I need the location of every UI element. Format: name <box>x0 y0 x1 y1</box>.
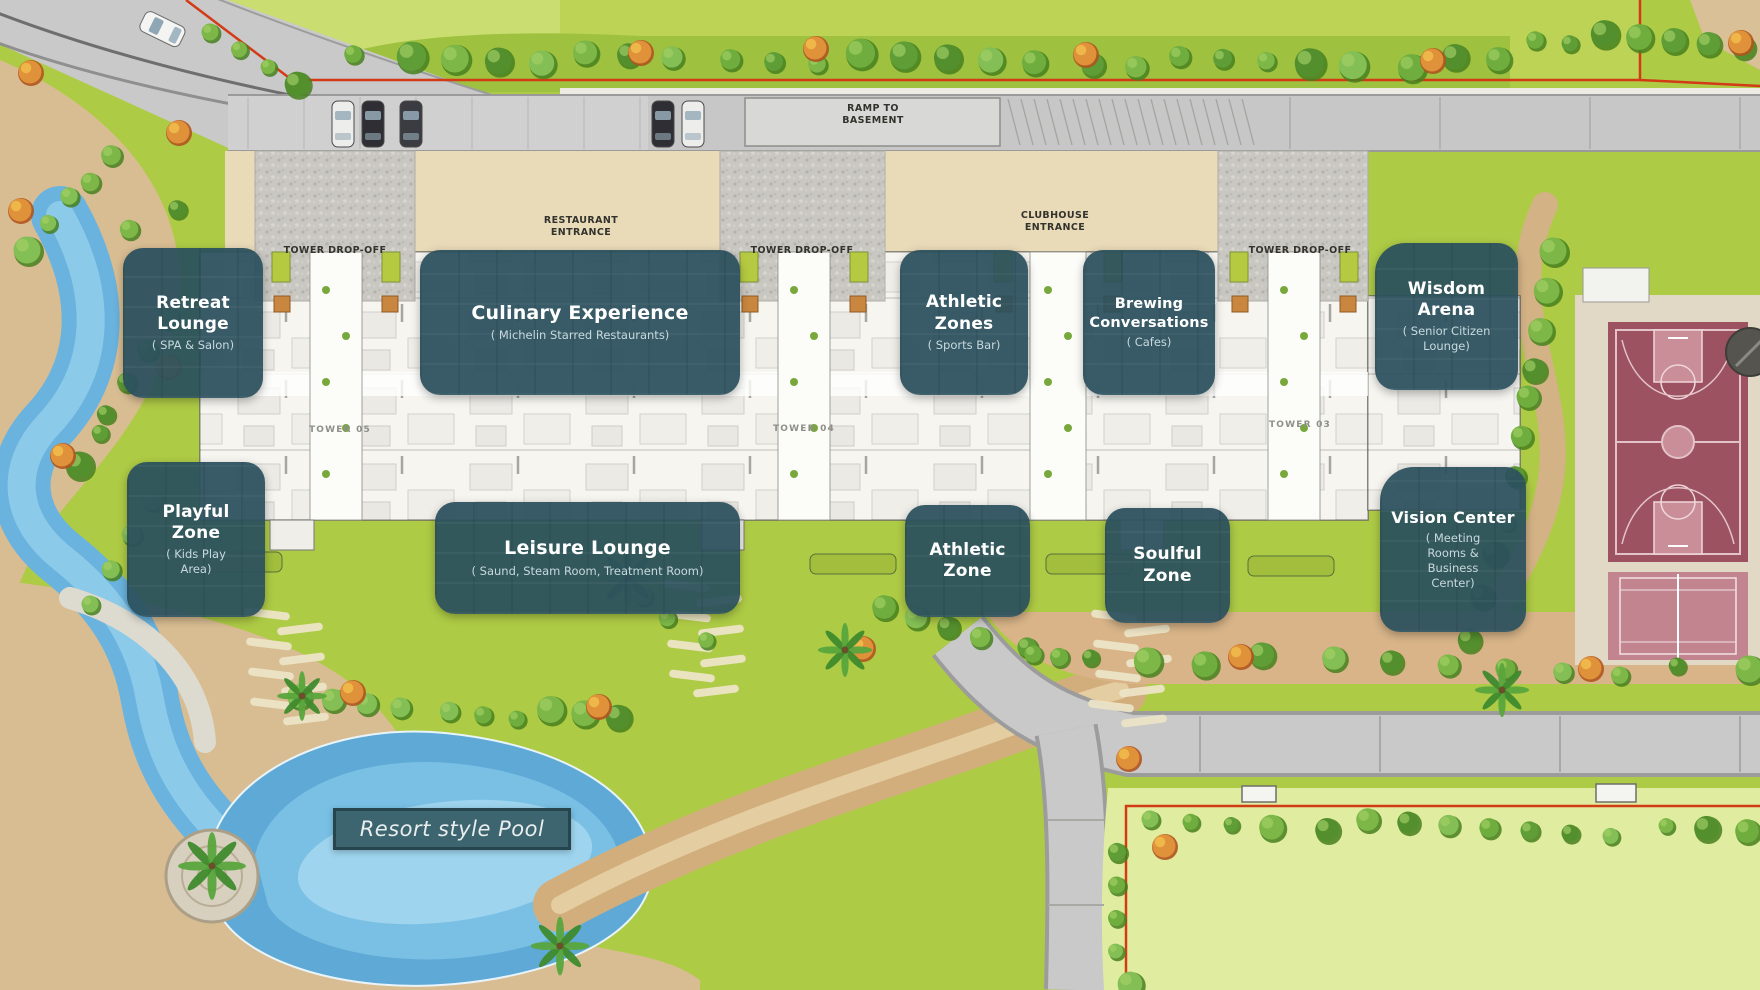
callout-title: Wisdom Arena <box>1383 279 1510 322</box>
clubhouse-corridor <box>1030 252 1086 520</box>
callout-subtitle: ( Senior Citizen Lounge) <box>1383 324 1510 354</box>
masterplan-site-plan: Retreat Lounge ( SPA & Salon) Culinary E… <box>0 0 1760 990</box>
big-lawn <box>1102 788 1760 990</box>
callout-title: Athletic Zones <box>908 292 1020 335</box>
callout-athletic-zones: Athletic Zones ( Sports Bar) <box>900 250 1028 395</box>
tower-04-label: TOWER 04 <box>764 424 844 434</box>
tower-03-label: TOWER 03 <box>1260 420 1340 430</box>
callout-vision-center: Vision Center ( Meeting Rooms & Business… <box>1380 467 1526 632</box>
callout-soulful-zone: Soulful Zone <box>1105 508 1230 623</box>
callout-title: Culinary Experience <box>471 302 688 326</box>
callout-subtitle: ( Kids Play Area) <box>155 547 237 577</box>
tower-dropoff-label-1: TOWER DROP-OFF <box>270 245 400 257</box>
callout-title: Retreat Lounge <box>145 293 241 336</box>
callout-retreat-lounge: Retreat Lounge ( SPA & Salon) <box>123 248 263 398</box>
tower-dropoff-label-2: TOWER DROP-OFF <box>737 245 867 257</box>
tower-dropoff-label-3: TOWER DROP-OFF <box>1230 245 1370 257</box>
callout-subtitle: ( Cafes) <box>1127 335 1172 350</box>
callout-subtitle: ( Saund, Steam Room, Treatment Room) <box>472 564 704 579</box>
resort-pool-label: Resort style Pool <box>333 808 571 850</box>
callout-title: Soulful Zone <box>1113 544 1222 587</box>
callout-title: Vision Center <box>1391 508 1515 528</box>
callout-subtitle: ( SPA & Salon) <box>152 338 234 353</box>
callout-subtitle: ( Sports Bar) <box>928 338 1001 353</box>
lobby-corridor-t05 <box>310 252 362 520</box>
callout-title: Athletic Zone <box>913 540 1022 583</box>
tower-05-label: TOWER 05 <box>300 425 380 435</box>
callout-leisure-lounge: Leisure Lounge ( Saund, Steam Room, Trea… <box>435 502 740 614</box>
callout-wisdom-arena: Wisdom Arena ( Senior Citizen Lounge) <box>1375 243 1518 390</box>
lobby-corridor-t04 <box>778 252 830 520</box>
sports-courts <box>1575 268 1760 665</box>
callout-subtitle: ( Meeting Rooms & Business Center) <box>1410 531 1496 591</box>
lobby-corridor-t03 <box>1268 252 1320 520</box>
callout-title: Playful Zone <box>155 502 237 545</box>
callout-brewing-conversations: Brewing Conversations ( Cafes) <box>1083 250 1215 395</box>
callout-title: Brewing Conversations <box>1087 295 1211 331</box>
parking-strip <box>228 96 648 150</box>
callout-athletic-zone: Athletic Zone <box>905 505 1030 617</box>
clubhouse-entrance-label: CLUBHOUSE ENTRANCE <box>1000 210 1110 235</box>
callout-title: Leisure Lounge <box>504 537 671 561</box>
callout-playful-zone: Playful Zone ( Kids Play Area) <box>127 462 265 617</box>
restaurant-entrance-label: RESTAURANT ENTRANCE <box>526 215 636 240</box>
callout-culinary-experience: Culinary Experience ( Michelin Starred R… <box>420 250 740 395</box>
callout-subtitle: ( Michelin Starred Restaurants) <box>491 328 670 343</box>
ramp-to-basement-label: RAMP TO BASEMENT <box>818 103 928 128</box>
building-floorplan <box>196 151 1520 576</box>
court-shed <box>1583 268 1649 302</box>
